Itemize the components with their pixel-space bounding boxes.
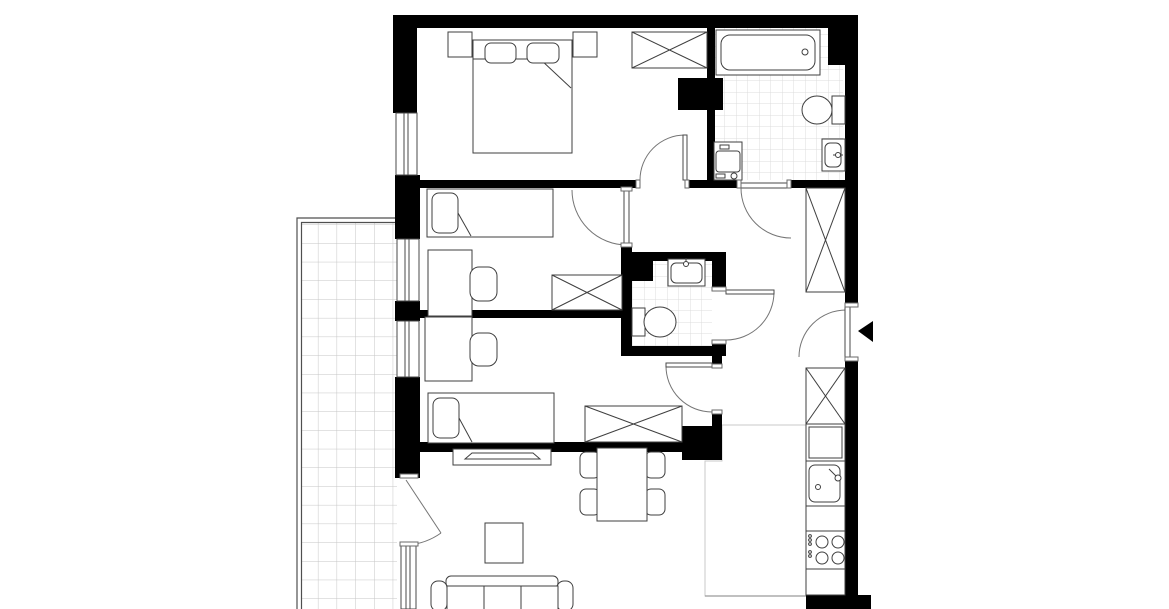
pillow-left <box>485 43 516 63</box>
floor-plan-canvas <box>0 0 1169 609</box>
hall-wardrobe-upper <box>806 188 845 292</box>
bedroom-2 <box>427 189 622 316</box>
tv-sideboard <box>453 449 551 465</box>
entrance-marker-triangle <box>858 321 873 342</box>
dining-table <box>597 448 647 521</box>
wardrobe-bedroom3 <box>585 406 682 442</box>
sofa-cushion-1 <box>447 586 484 609</box>
wall-block-kitchen <box>682 426 722 460</box>
wardrobe-bedroom2 <box>552 275 622 310</box>
sofa-armrest-left <box>431 581 447 609</box>
sofa-cushion-3 <box>521 586 558 609</box>
entrance-door <box>799 303 873 361</box>
sofa-armrest-right <box>557 581 573 609</box>
wall-right-upper <box>845 60 858 307</box>
wall-hall-top-mid <box>685 180 737 188</box>
gap-wc-door <box>712 290 726 342</box>
bathroom-washbasin <box>822 139 845 171</box>
wall-left-3 <box>395 301 420 321</box>
desk-2 <box>428 250 472 316</box>
window-bedroom1 <box>396 113 417 175</box>
washer-door <box>731 173 737 179</box>
sink-faucet <box>835 475 841 481</box>
wall-wc-bottom <box>621 346 726 356</box>
wall-corner-bottom-right <box>806 595 871 609</box>
balcony-door <box>400 474 441 546</box>
sofa-cushion-2 <box>484 586 521 609</box>
countertop <box>806 506 845 531</box>
dining-set <box>580 448 665 521</box>
bathroom-door <box>737 180 791 238</box>
floor-plan-drawing <box>0 0 1169 609</box>
base-cabinet <box>806 424 845 461</box>
wall-top <box>393 15 837 28</box>
wardrobe-bedroom1 <box>632 32 707 68</box>
balcony-tile-floor <box>301 222 397 609</box>
hallway <box>806 188 845 424</box>
bedroom-1 <box>448 32 707 153</box>
wall-left-1 <box>393 18 417 113</box>
countertop-2 <box>806 569 845 595</box>
wall-left-4 <box>395 377 420 478</box>
dining-chair-3 <box>645 452 665 478</box>
tv <box>465 453 540 459</box>
kitchen-sink <box>806 461 845 506</box>
gap-bedroom3-door <box>712 367 722 413</box>
kitchen <box>806 424 845 595</box>
bathroom-toilet <box>802 96 845 124</box>
desk-3 <box>425 317 472 381</box>
wc-basin-faucet <box>684 262 689 267</box>
wall-right-lower <box>845 357 858 596</box>
coffee-table <box>485 523 523 563</box>
nightstand-right <box>573 32 597 57</box>
wall-bedroom1-bedroom2 <box>417 180 640 188</box>
hall-wardrobe-lower <box>806 368 845 424</box>
chair-2 <box>470 267 497 301</box>
shaft-bathroom <box>678 78 723 110</box>
pillow-2 <box>432 193 458 233</box>
dining-chair-4 <box>645 489 665 515</box>
basin-faucet <box>836 153 841 158</box>
window-bedroom2 <box>397 239 419 301</box>
wall-left-2 <box>395 175 420 239</box>
nightstand-left <box>448 32 472 57</box>
pillow-3 <box>433 398 459 438</box>
living-room <box>431 448 665 609</box>
chair-3 <box>470 333 497 366</box>
wc-washbasin <box>668 258 705 286</box>
bedroom1-door <box>636 135 689 188</box>
washing-machine <box>714 142 742 180</box>
window-living-room <box>401 545 416 609</box>
pillow-right <box>527 43 559 63</box>
wall-corner-top-right <box>828 15 858 65</box>
sofa <box>431 576 573 609</box>
wall-hall-top-right <box>791 180 845 188</box>
window-bedroom3 <box>397 321 419 377</box>
balcony <box>297 218 397 609</box>
wc-toilet <box>632 307 676 337</box>
cooktop <box>806 531 845 569</box>
bathtub <box>716 30 820 75</box>
